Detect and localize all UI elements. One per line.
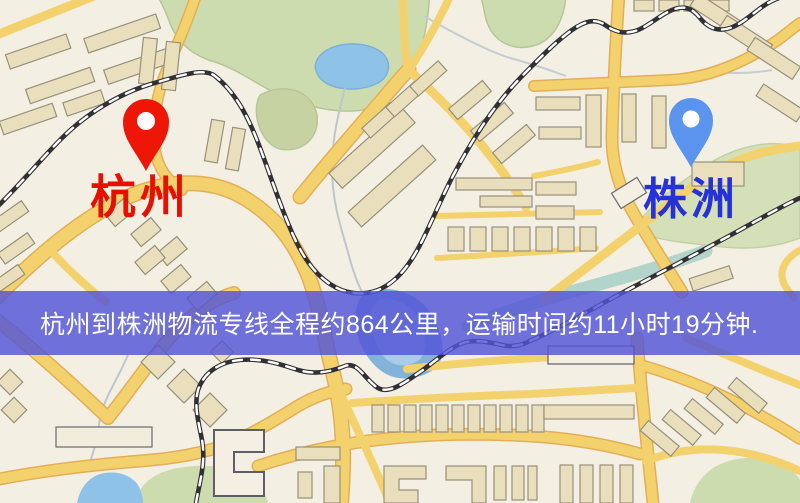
destination-city-label: 株洲 <box>643 178 739 222</box>
origin-city-label: 杭州 <box>90 174 190 220</box>
route-info-text: 杭州到株洲物流专线全程约864公里，运输时间约11小时19分钟. <box>0 305 758 341</box>
route-info-banner: 杭州到株洲物流专线全程约864公里，运输时间约11小时19分钟. <box>0 291 800 355</box>
destination-pin-hole <box>683 111 700 128</box>
origin-pin-hole <box>137 112 155 130</box>
map-viewport[interactable]: 杭州 株洲 杭州到株洲物流专线全程约864公里，运输时间约11小时19分钟. <box>0 0 800 503</box>
map-canvas[interactable] <box>0 0 800 503</box>
